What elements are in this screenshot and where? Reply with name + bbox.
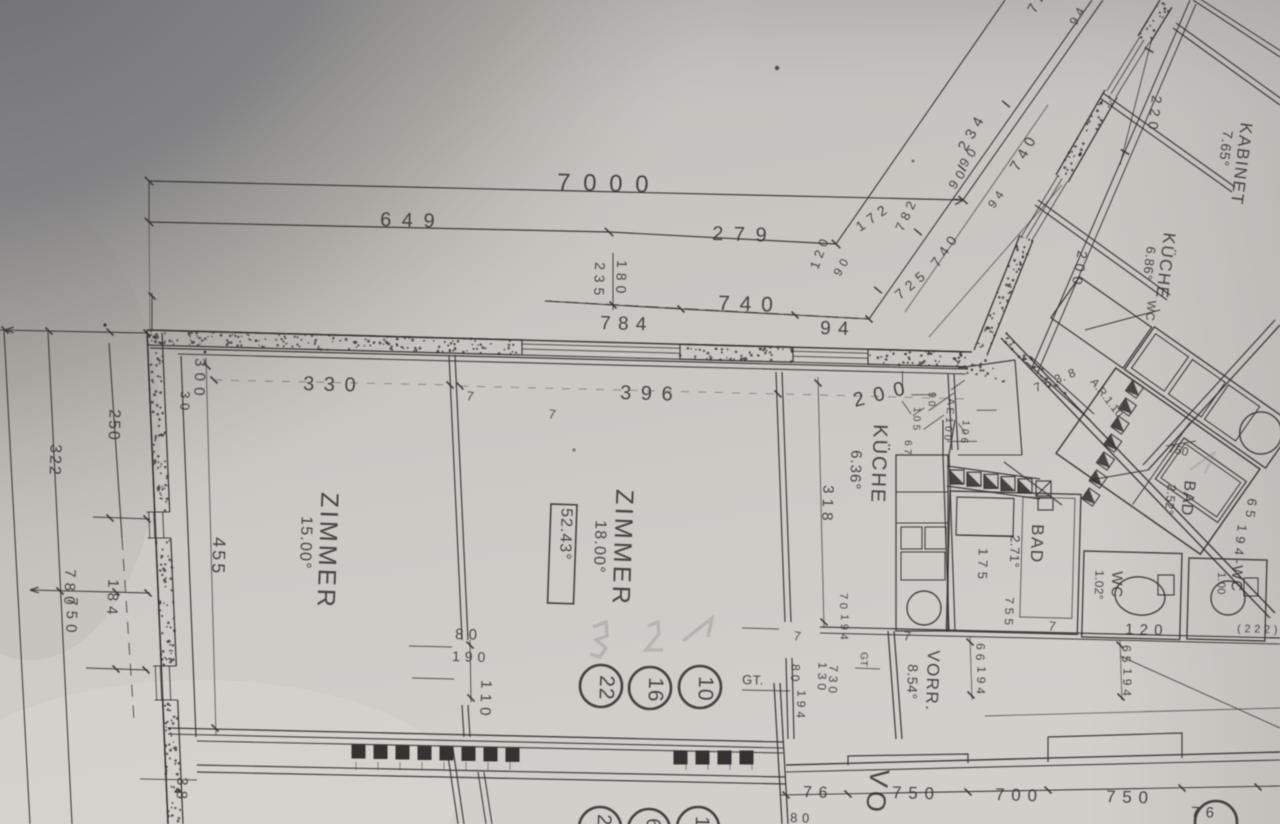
svg-text:7 0 0 0: 7 0 0 0	[557, 169, 652, 198]
svg-text:3 0: 3 0	[177, 391, 193, 411]
svg-text:2.71°: 2.71°	[1007, 535, 1023, 569]
svg-text:1 2 0: 1 2 0	[1125, 621, 1164, 639]
svg-text:1: 1	[691, 816, 713, 824]
svg-text:ZIMMER: ZIMMER	[606, 489, 638, 608]
svg-text:6 7: 6 7	[901, 440, 913, 455]
svg-text:3 8: 3 8	[173, 777, 191, 800]
svg-text:1 1 0: 1 1 0	[476, 680, 494, 716]
svg-text:18.00°: 18.00°	[590, 520, 609, 574]
svg-text:ZIMMER: ZIMMER	[311, 492, 343, 611]
svg-text:1 9 4: 1 9 4	[794, 690, 809, 719]
svg-text:455: 455	[208, 537, 229, 577]
svg-text:8 0: 8 0	[455, 626, 478, 644]
svg-text:1 8 4: 1 8 4	[103, 579, 121, 615]
svg-text:1 7 5: 1 7 5	[975, 548, 991, 580]
svg-text:52.43°: 52.43°	[556, 508, 575, 561]
svg-text:1.00: 1.00	[1215, 572, 1228, 595]
svg-text:1 3 0: 1 3 0	[815, 662, 830, 691]
svg-text:7 4 0: 7 4 0	[718, 292, 775, 317]
svg-text:BAD: BAD	[1027, 524, 1047, 564]
svg-text:9 4: 9 4	[820, 318, 850, 340]
svg-text:7 5 0: 7 5 0	[62, 597, 80, 633]
svg-text:KÜCHE: KÜCHE	[866, 424, 891, 505]
svg-text:WC: WC	[1108, 571, 1126, 599]
svg-text:1 0 6: 1 0 6	[958, 420, 971, 444]
svg-text:3 1 8: 3 1 8	[818, 485, 836, 521]
svg-text:2 3 5: 2 3 5	[591, 262, 608, 296]
svg-text:VORR.: VORR.	[922, 650, 943, 712]
svg-text:10: 10	[693, 676, 717, 702]
svg-text:1 9 4: 1 9 4	[974, 666, 989, 695]
svg-text:GT: GT	[857, 652, 868, 667]
svg-text:6 5: 6 5	[1119, 645, 1134, 663]
svg-text:250: 250	[105, 409, 123, 442]
svg-text:22: 22	[594, 675, 618, 701]
svg-text:1 0 5: 1 0 5	[910, 407, 922, 431]
svg-text:16: 16	[643, 677, 667, 703]
svg-text:1 9 0: 1 9 0	[452, 648, 486, 665]
svg-text:1 8 0: 1 8 0	[613, 260, 630, 294]
svg-text:6 6: 6 6	[973, 643, 988, 661]
svg-text:7 0 0: 7 0 0	[995, 785, 1038, 805]
svg-text:2: 2	[593, 814, 615, 824]
svg-text:6: 6	[642, 818, 664, 824]
svg-text:7 6: 7 6	[803, 784, 829, 802]
svg-text:VO: VO	[859, 767, 895, 817]
svg-text:3 9 6: 3 9 6	[620, 382, 675, 406]
svg-text:7 8 4: 7 8 4	[600, 313, 648, 335]
svg-text:7 5 0: 7 5 0	[892, 783, 935, 803]
svg-text:8 0: 8 0	[788, 664, 803, 682]
svg-text:8.54°: 8.54°	[904, 664, 921, 700]
svg-text:6 4 9: 6 4 9	[380, 209, 438, 232]
svg-text:WC: WC	[1143, 300, 1159, 322]
svg-text:8 0: 8 0	[790, 810, 810, 824]
svg-text:7 5 0: 7 5 0	[1106, 787, 1149, 807]
svg-text:2 7 9: 2 7 9	[712, 223, 770, 247]
svg-text:15.00°: 15.00°	[296, 516, 315, 570]
svg-text:GT.: GT.	[742, 672, 764, 688]
svg-text:1.02°: 1.02°	[1092, 570, 1107, 600]
svg-text:9 0: 9 0	[925, 392, 937, 407]
svg-text:( 2 2 2 ): ( 2 2 2 )	[1237, 623, 1278, 636]
svg-text:7 0: 7 0	[837, 593, 850, 610]
svg-text:6 5: 6 5	[1243, 498, 1260, 519]
svg-text:6.36°: 6.36°	[846, 450, 864, 491]
svg-text:322: 322	[46, 444, 64, 477]
svg-text:3 3 0: 3 3 0	[303, 373, 358, 397]
svg-text:7 5 5: 7 5 5	[1002, 597, 1017, 626]
